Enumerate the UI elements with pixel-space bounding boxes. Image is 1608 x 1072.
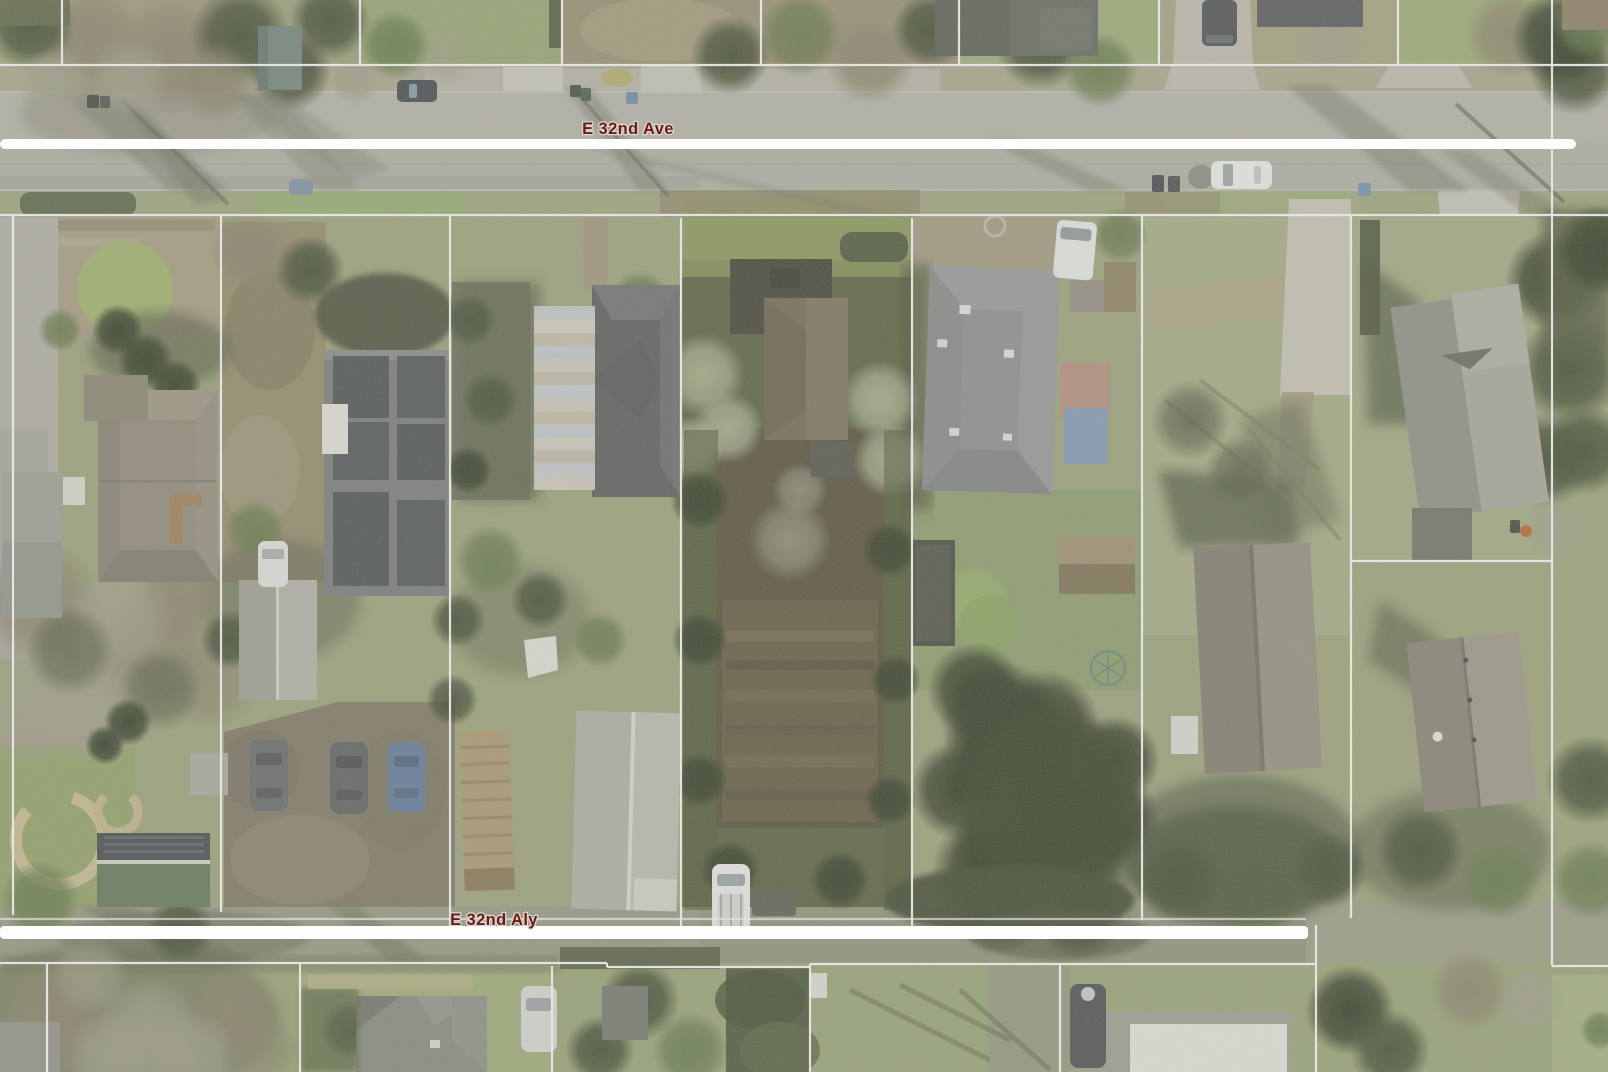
- svg-text:E 32nd Ave: E 32nd Ave: [582, 120, 674, 138]
- svg-text:E 32nd Aly: E 32nd Aly: [450, 911, 538, 929]
